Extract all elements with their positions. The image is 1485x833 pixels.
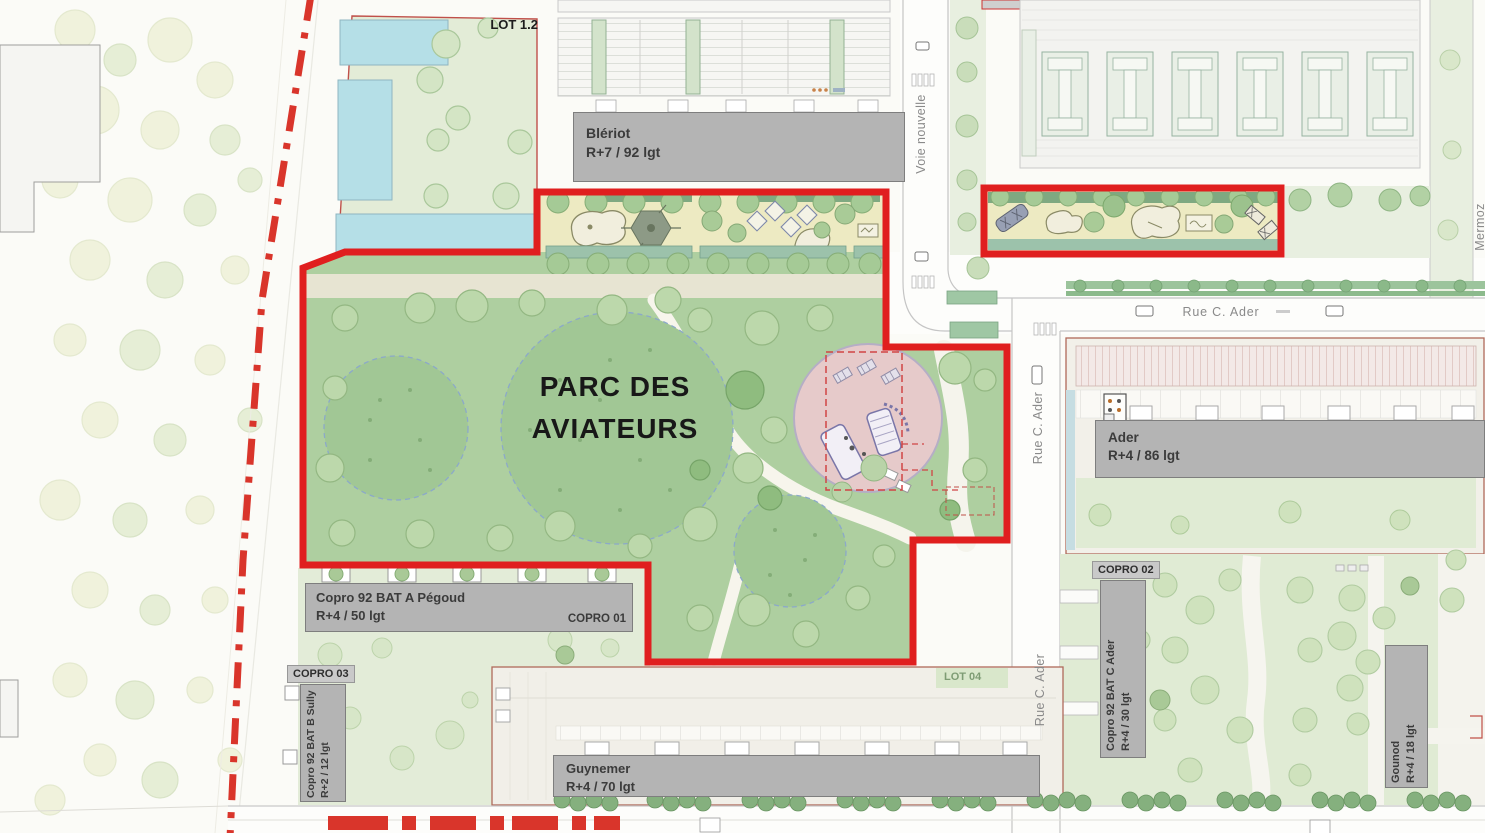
site-plan: LOT 1.2 Blériot R+7 / 92 lgt Voie nouvel… [0,0,1485,833]
play-strip-west [540,191,883,275]
northeast-block [982,0,1420,168]
building-spec: R+4 / 30 lgt [1119,589,1134,751]
entrance-icon [1104,394,1126,422]
copro-01-label: COPRO 01 [568,612,626,628]
building-gounod: Gounod R+4 / 18 lgt [1385,645,1428,788]
building-spec: R+4 / 70 lgt [566,778,1027,796]
play-strip-east [984,183,1430,258]
park-title: PARC DES AVIATEURS [455,366,775,450]
building-name: Copro 92 BAT A Pégoud [316,589,622,607]
footpath [1251,556,1262,806]
mermoz-road [1430,0,1473,298]
building-name: Ader [1108,429,1472,447]
building-name: Blériot [586,124,892,143]
building-name: Copro 92 BAT C Ader [1104,589,1119,751]
street-label-mermoz: Mermoz [1473,203,1485,251]
building-spec: R+2 / 12 lgt [318,690,332,798]
building-name: Guynemer [566,760,1027,778]
building-ader: Ader R+4 / 86 lgt [1095,420,1485,478]
copro-03-label: COPRO 03 [287,665,355,683]
street-label-rue-c-ader-vertical-2: Rue C. Ader [1033,654,1047,727]
building-bat-c-ader: Copro 92 BAT C Ader R+4 / 30 lgt [1100,580,1146,758]
building-guynemer: Guynemer R+4 / 70 lgt [553,755,1040,797]
street-label-rue-c-ader-horizontal: Rue C. Ader [1183,305,1260,319]
copro-02-label: COPRO 02 [1092,561,1160,579]
building-sully: Copro 92 BAT B Sully R+2 / 12 lgt [300,684,346,802]
lot-04-label: LOT 04 [944,671,981,683]
boundary-dashes-south [328,816,620,830]
building-name: Copro 92 BAT B Sully [304,690,318,798]
building-spec: R+4 / 18 lgt [1404,652,1419,783]
lot-1-2-label: LOT 1.2 [462,17,538,32]
building-bleriot: Blériot R+7 / 92 lgt [573,112,905,182]
esplanade-path [306,274,884,298]
building-name: Gounod [1389,652,1404,783]
street-label-rue-c-ader-vertical-1: Rue C. Ader [1031,392,1045,465]
building-spec: R+7 / 92 lgt [586,143,892,162]
street-label-voie-nouvelle: Voie nouvelle [914,94,928,174]
building-spec: R+4 / 86 lgt [1108,447,1472,465]
building-pegoud: Copro 92 BAT A Pégoud R+4 / 50 lgt COPRO… [305,583,633,632]
lot-1-2-parcel [336,16,537,254]
